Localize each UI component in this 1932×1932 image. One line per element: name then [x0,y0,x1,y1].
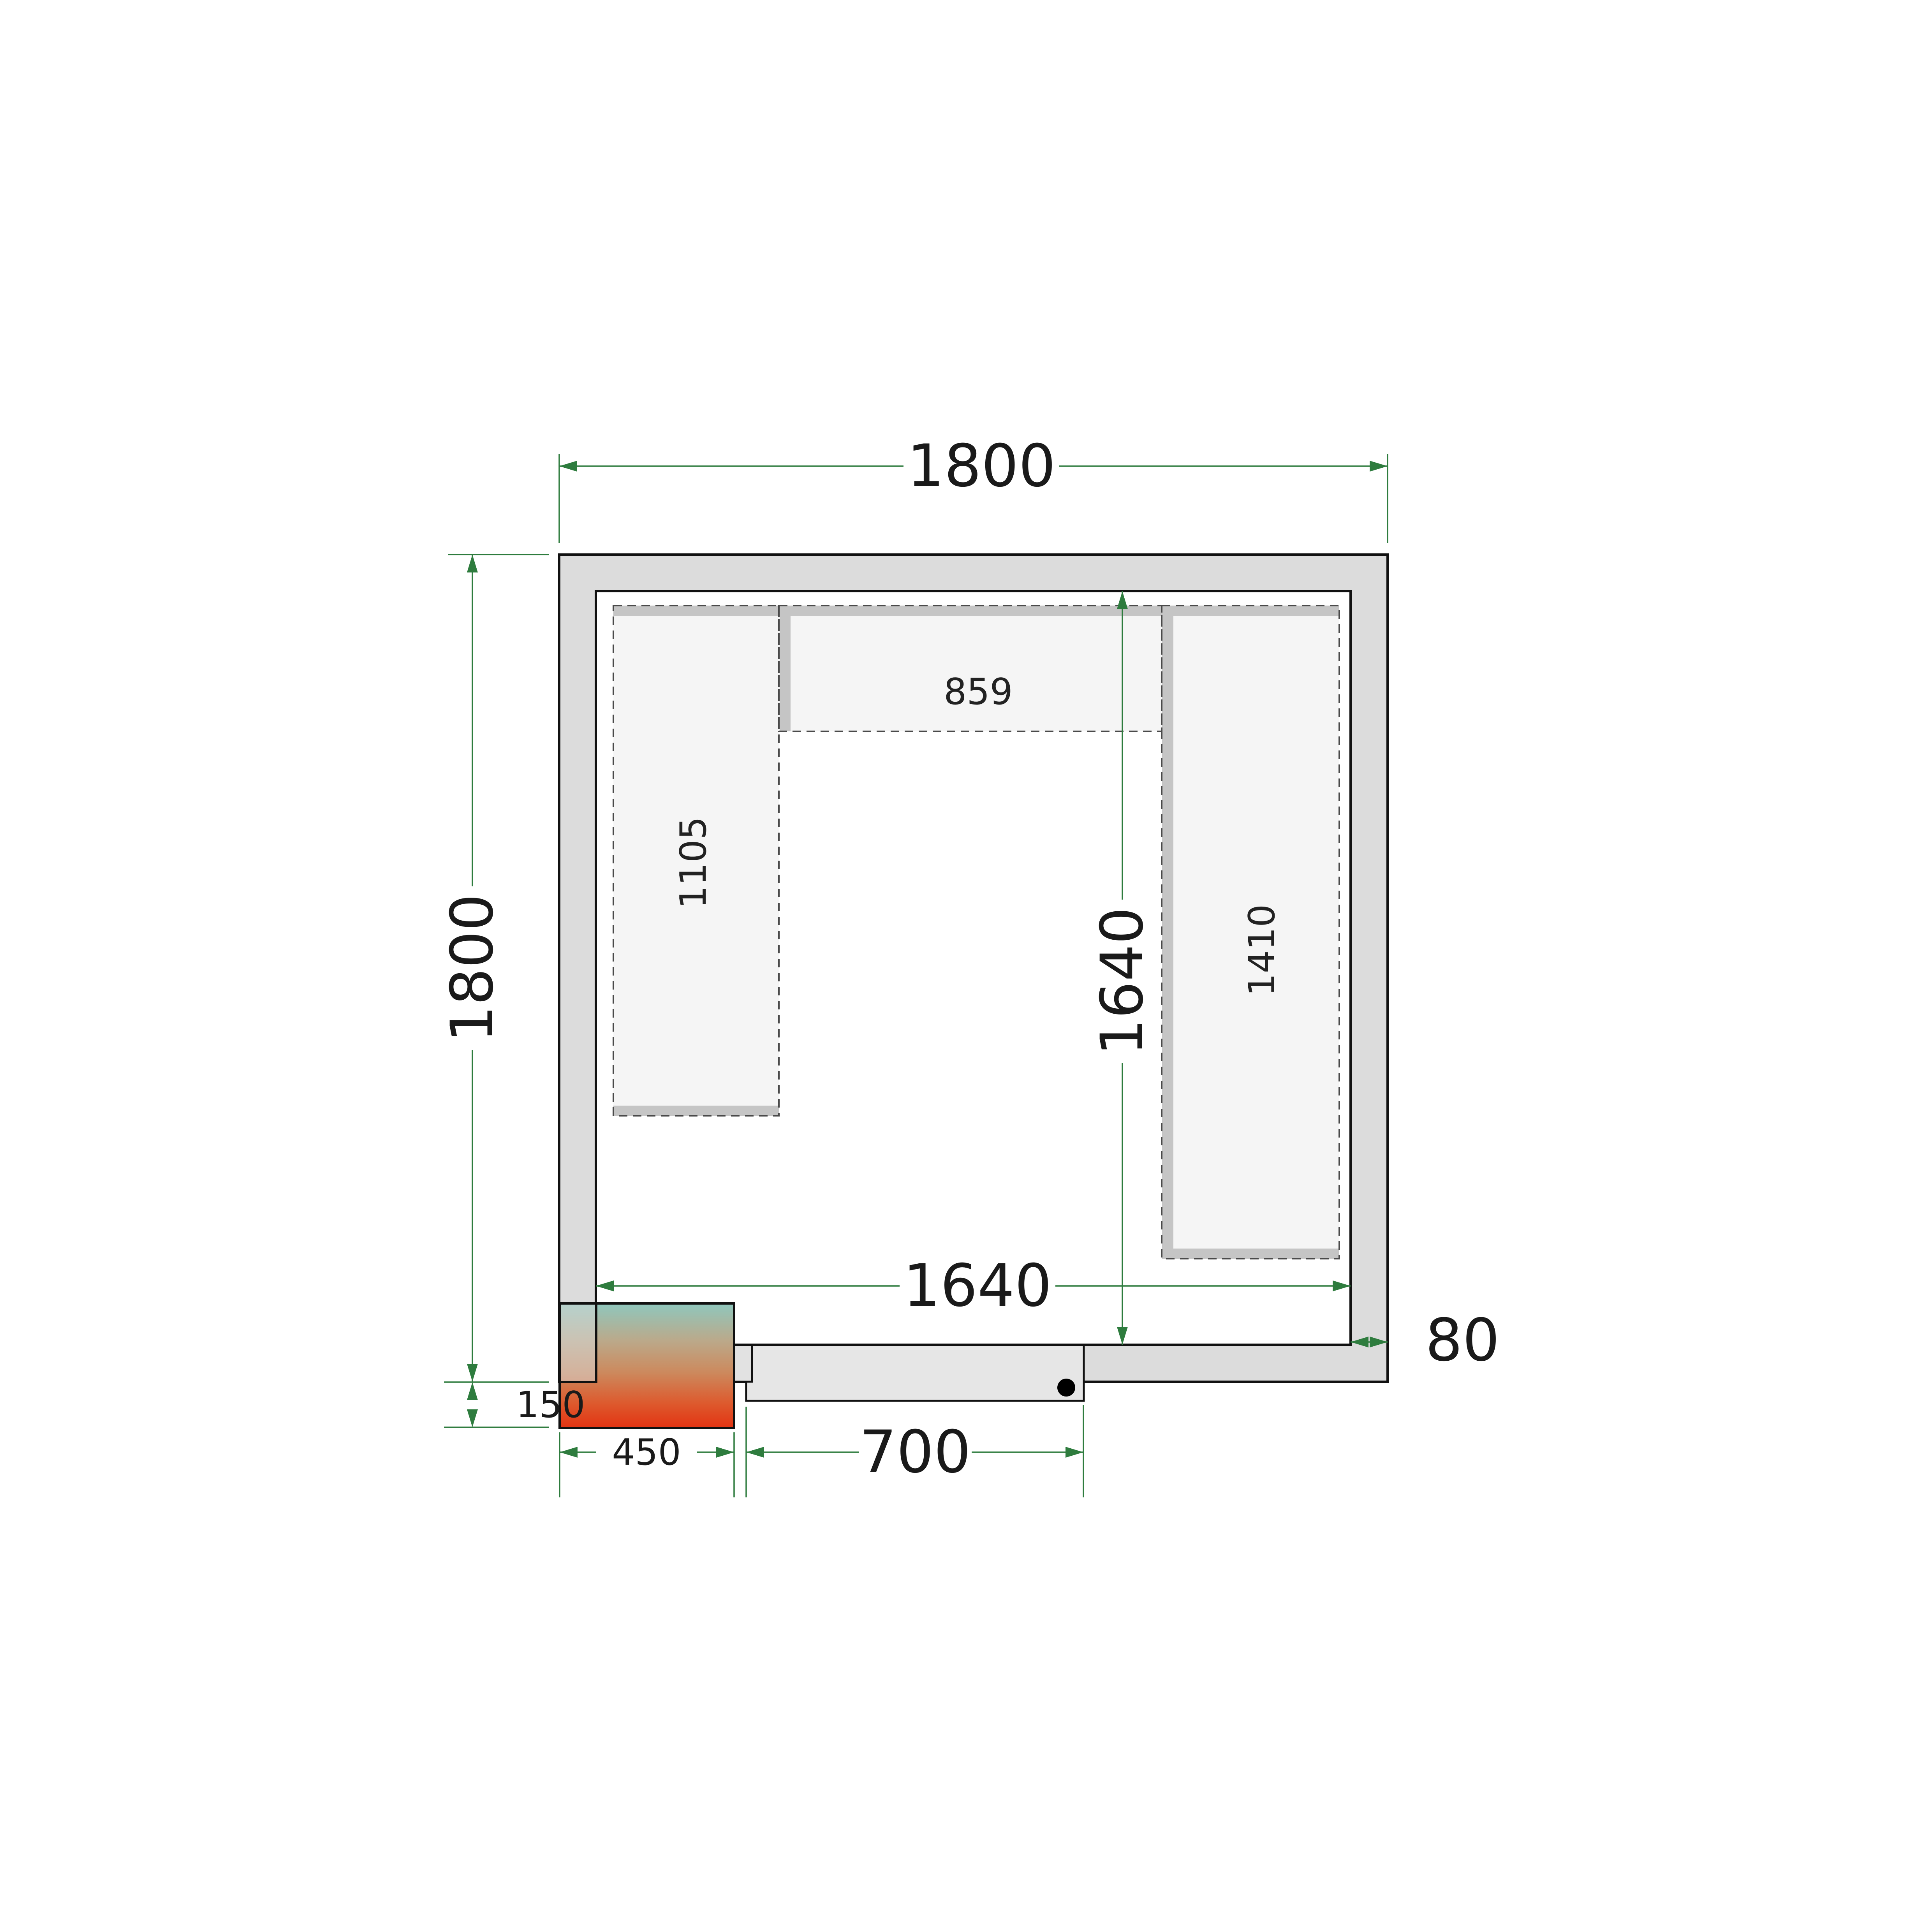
dim-label-unit-offset: 150 [516,1384,585,1426]
dim-label-outer-width: 1800 [907,432,1056,500]
left-shelf-label: 1105 [672,817,714,909]
floor-plan-page: 859 1105 1410 [0,0,1932,1932]
shelf-band-left-shelf-bottom [613,1106,779,1116]
dim-label-door-width: 700 [859,1418,971,1486]
floor-plan-drawing: 859 1105 1410 [0,0,1932,1932]
shelf-band-top [613,606,1339,616]
dim-label-inner-width: 1640 [903,1252,1052,1320]
wall-column-over-unit [560,1303,596,1382]
shelf-band-top-shelf-left [780,606,791,731]
dim-label-wall-thickness: 80 [1425,1307,1500,1374]
shelf-band-right-shelf-left [1162,606,1173,1259]
right-shelf-label: 1410 [1241,904,1283,997]
top-shelf-label: 859 [944,671,1013,713]
shelf-band-right-shelf-bottom [1162,1249,1339,1259]
door-jamb-block [734,1345,752,1382]
dim-label-unit-width: 450 [612,1431,681,1473]
dim-label-outer-height: 1800 [439,894,506,1043]
door-leaf [746,1345,1084,1401]
dim-label-inner-height: 1640 [1088,907,1156,1056]
door-handle-dot [1057,1379,1075,1397]
